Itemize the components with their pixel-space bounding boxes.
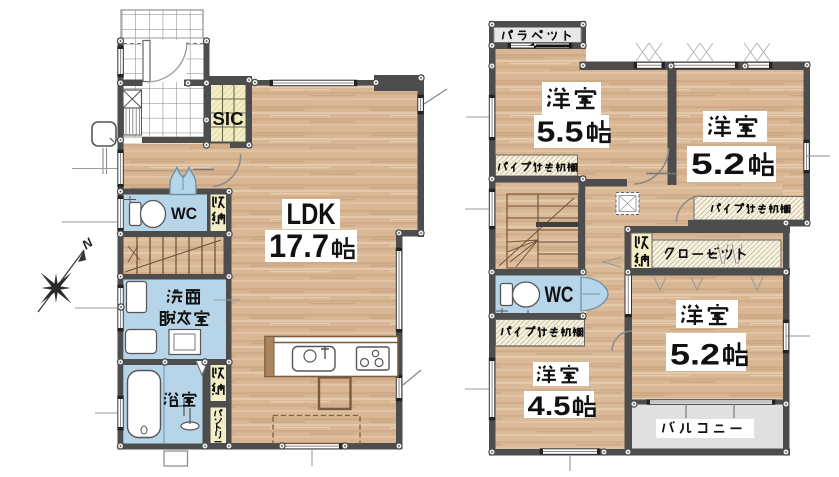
svg-text:LDK: LDK xyxy=(287,198,336,231)
svg-text:17.7: 17.7 xyxy=(269,228,329,264)
svg-text:4.5: 4.5 xyxy=(528,391,571,421)
svg-text:5.2: 5.2 xyxy=(670,339,720,372)
svg-text:WC: WC xyxy=(171,204,197,223)
svg-text:WC: WC xyxy=(545,282,574,307)
svg-text:5.2: 5.2 xyxy=(691,148,745,181)
svg-text:5.5: 5.5 xyxy=(537,117,584,149)
svg-text:SIC: SIC xyxy=(213,109,244,129)
